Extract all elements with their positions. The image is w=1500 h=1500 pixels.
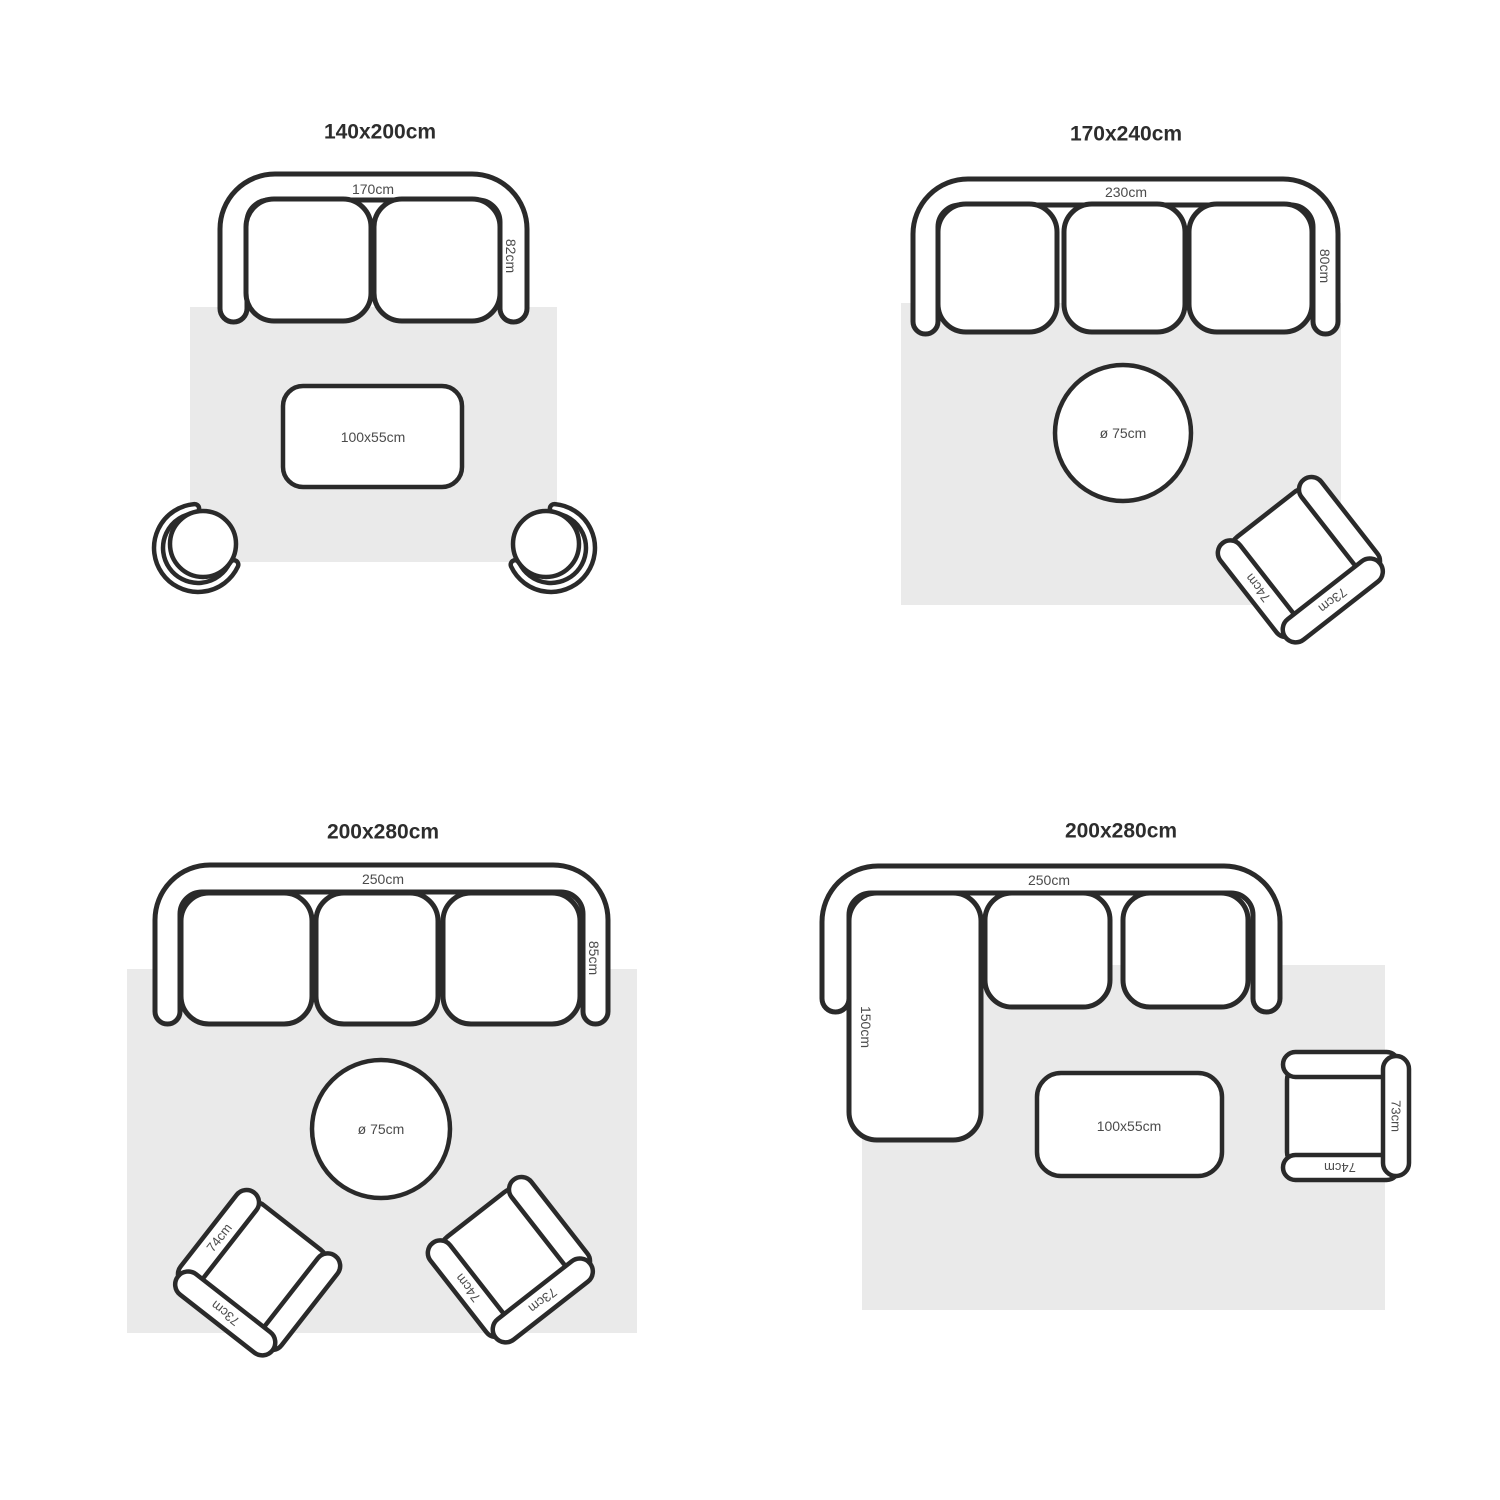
- sofa-cushion: [1064, 204, 1185, 332]
- sofa-cushion: [1123, 893, 1248, 1007]
- armchair-arm-label: 74cm: [1324, 1160, 1356, 1175]
- sofa-width-label: 170cm: [352, 181, 394, 197]
- tub-chair: [159, 509, 236, 588]
- layout-200x280-sectional: 200x280cm 250cm 150cm 100x55cm 74cm 73cm: [822, 819, 1409, 1310]
- armchair: 74cm 73cm: [1283, 1052, 1409, 1180]
- coffee-table-label: 100x55cm: [341, 429, 406, 445]
- sofa-cushion: [443, 893, 580, 1024]
- armchair-back-label: 73cm: [1388, 1100, 1403, 1132]
- sofa-cushion: [374, 199, 500, 321]
- layout-title: 200x280cm: [327, 820, 439, 843]
- tub-chair-left: [159, 509, 236, 588]
- layout-title: 170x240cm: [1070, 122, 1182, 145]
- round-table-label: ø 75cm: [358, 1121, 405, 1137]
- sofa-cushion: [181, 893, 312, 1024]
- layout-140x200: 140x200cm 170cm 82cm 100x55cm: [159, 120, 591, 587]
- coffee-table-label: 100x55cm: [1097, 1118, 1162, 1134]
- rug-size-guide: 140x200cm 170cm 82cm 100x55cm 170x240cm …: [0, 0, 1500, 1500]
- sofa-cushion: [938, 204, 1057, 332]
- layout-title: 140x200cm: [324, 120, 436, 143]
- sofa-width-label: 250cm: [362, 871, 404, 887]
- sofa-cushion: [1189, 204, 1312, 332]
- chaise-depth-label: 150cm: [858, 1006, 874, 1048]
- rug-size-guide-diagram: 140x200cm 170cm 82cm 100x55cm 170x240cm …: [0, 0, 1500, 1500]
- sofa-cushion: [316, 893, 438, 1024]
- sofa-depth-label: 82cm: [503, 239, 519, 273]
- sofa-cushion: [985, 893, 1110, 1007]
- layout-170x240: 170x240cm 230cm 80cm ø 75cm 74cm 73cm: [901, 122, 1391, 650]
- round-table-label: ø 75cm: [1100, 425, 1147, 441]
- layout-title: 200x280cm: [1065, 819, 1177, 842]
- tub-chair-right: [513, 509, 590, 588]
- sofa-width-label: 250cm: [1028, 872, 1070, 888]
- sofa-depth-label: 85cm: [586, 941, 602, 975]
- tub-chair: [513, 509, 590, 588]
- sofa-depth-label: 80cm: [1317, 249, 1333, 283]
- sofa-cushion: [246, 199, 371, 321]
- layout-200x280-sofa: 200x280cm 250cm 85cm ø 75cm 74cm 73cm 74…: [127, 820, 637, 1363]
- sofa-width-label: 230cm: [1105, 184, 1147, 200]
